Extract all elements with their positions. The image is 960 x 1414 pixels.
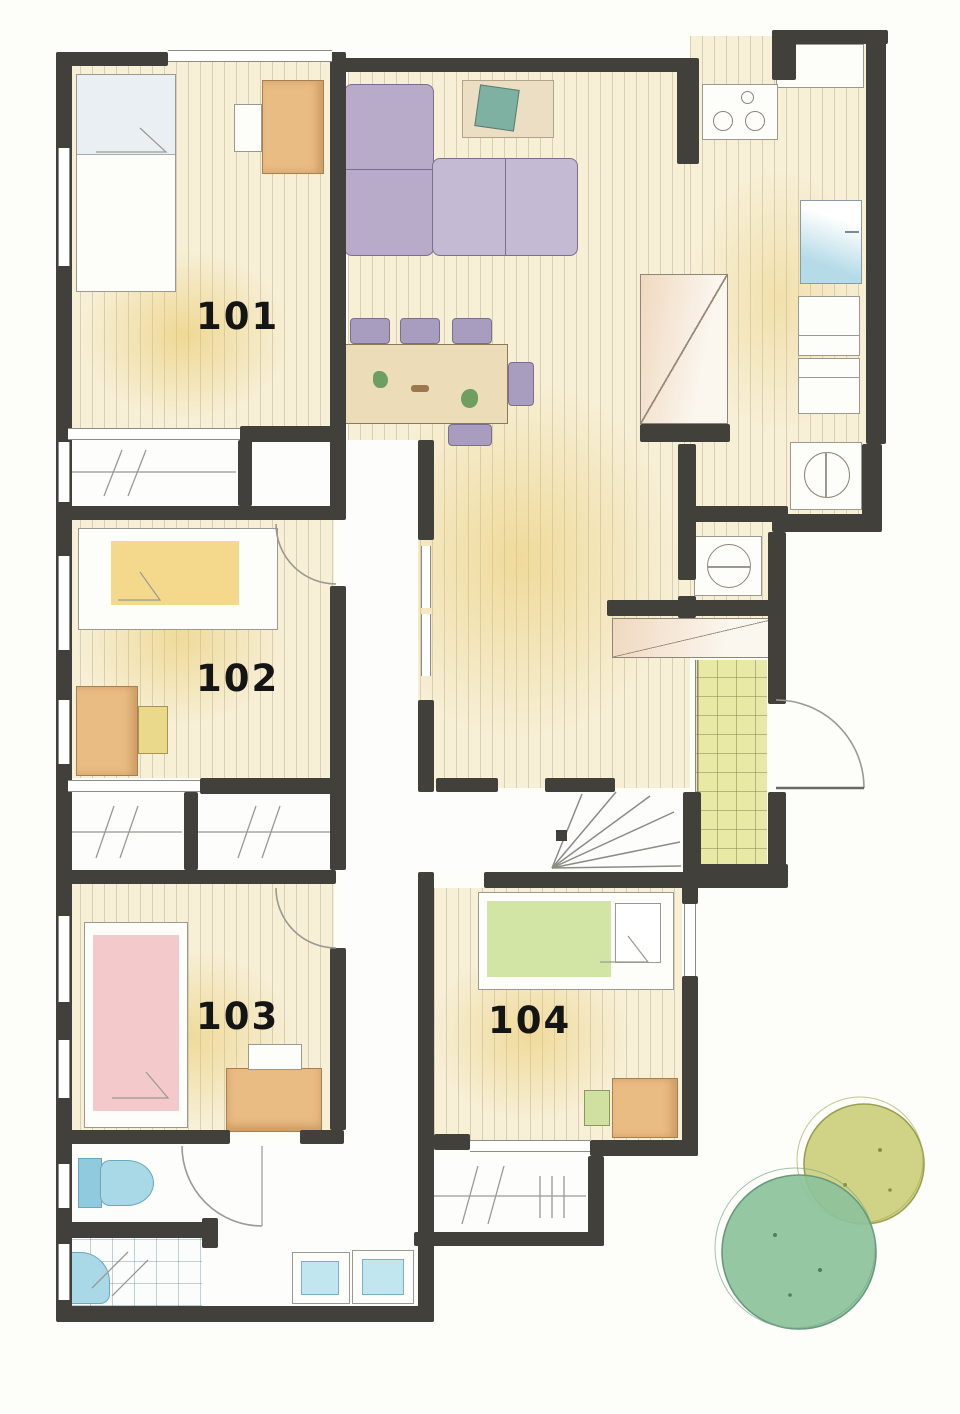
dining-chair-1 [350,318,390,344]
washer-drum [804,452,850,498]
shelf-103 [248,1044,302,1070]
floor-cushion [474,84,519,131]
shoe-cabinet [612,618,776,658]
wall-corridor-left-a [330,586,346,870]
washing-machine [790,442,862,510]
dining-chair-5 [448,424,492,446]
stairs-floor [545,792,683,872]
toilet-2-bowl [100,1160,154,1206]
wall-porch-bottom [414,1232,604,1246]
vanity-sink-2 [352,1250,414,1304]
wall-corridor-left-b [330,948,346,1130]
entrance-door-arc [776,700,864,788]
bed-102-duvet [111,541,239,605]
wall-entrance-right-a [768,532,786,704]
table-plant-2 [461,389,478,408]
wall-ldk-bottom-a [436,778,498,792]
room-101-label: 101 [196,298,279,335]
window-balcony-101 [68,428,240,440]
wall-101-bottom [240,426,336,442]
closet-divider-101 [238,440,252,506]
sliding-door-ldk-a [421,546,431,608]
tree-yellow [797,1097,924,1224]
dining-chair-4 [508,362,534,406]
sofa-horizontal [432,158,578,256]
wall-top-101 [56,52,168,66]
desk-102 [76,686,138,776]
wall-kitchen-stub [677,58,699,164]
window-104-right [684,904,696,976]
window-102-bottom [68,780,200,792]
dining-chair-3 [452,318,492,344]
bed-103-duvet [93,935,179,1111]
wall-kitchen-utility-div [678,506,788,522]
kitchen-cabinet-1 [798,296,860,356]
table-item [411,385,429,392]
room-104-label: 104 [488,1002,571,1039]
wall-kitchen-right [866,30,886,444]
toilet-2-tank [78,1158,102,1208]
toilet-unit [694,536,762,596]
wall-stairs-genkan [683,792,701,880]
wall-104-bottom-b [590,1140,698,1156]
pantry-cabinet [640,274,728,424]
window-top-101 [168,50,332,62]
window-103-left-b [58,1040,70,1098]
wall-104-bottom-a [434,1134,470,1150]
chair-104 [584,1090,610,1126]
fridge-handle [845,231,859,233]
bed-101-pillow-area [77,75,175,155]
wall-corridor-right-a [418,440,434,540]
floor-plan: 101 102 103 104 [0,0,960,1414]
closet-divider-102 [184,792,198,870]
bed-104 [478,892,674,990]
window-103-left-a [58,916,70,1002]
sofa-cushion-line-h [505,159,506,255]
nightstand-101 [234,104,262,152]
wall-102-top [56,506,336,520]
wall-corridor-right-b [418,700,434,792]
bed-104-pillow [615,903,661,963]
room-103-label: 103 [196,998,279,1035]
dining-table [344,344,508,424]
kitchen-cabinet-2 [798,358,860,414]
window-bath-left [58,1244,70,1300]
burner-left [713,111,733,131]
hallway-floor [418,792,545,872]
wall-utility-step [772,514,882,532]
window-102-left-a [58,556,70,650]
bed-102 [78,528,278,630]
washer-dial [825,452,827,498]
wall-top-ldk [332,58,690,72]
wall-pantry-bottom [640,424,730,442]
genkan-tiles [695,660,767,868]
desk-104 [612,1078,678,1138]
wall-102-bottom [200,778,336,794]
wall-washroom-top-b [300,1130,344,1144]
burner-right [745,111,765,131]
wall-toilet-bottom [607,600,779,616]
rug [462,80,554,138]
window-104-porch [470,1140,590,1152]
cabinet-1-line [799,335,859,336]
desk-101 [262,80,324,174]
wall-utility-right [862,444,882,524]
bed-103 [84,922,188,1128]
side-table-102 [138,706,168,754]
window-balcony-left [58,442,70,502]
closet-strip-102 [68,792,336,870]
stove [702,84,778,140]
table-plant-1 [373,371,388,388]
closet-strip-101 [68,440,336,506]
wall-washroom-top-a [56,1130,230,1144]
sink-1-basin [301,1261,339,1295]
bed-101 [76,74,176,292]
corridor-floor [344,440,418,1306]
wall-ldk-bottom-b [545,778,615,792]
tree-green [715,1168,876,1329]
room-102-label: 102 [196,660,279,697]
wall-west-of-104 [418,872,434,1322]
wall-103-top [56,870,336,884]
sink-2-basin [362,1259,404,1295]
wall-bottom-outer [56,1306,434,1322]
toilet-line [707,566,751,568]
burner-small [741,91,754,104]
sofa-cushion-line-v [345,169,433,170]
wall-101-ldk [330,52,346,520]
vanity-sink-1 [292,1252,350,1304]
window-102-left-b [58,700,70,764]
wall-104-right-b [682,976,698,1156]
sofa-vertical [344,84,434,256]
bed-104-duvet [487,901,611,977]
window-washroom-left [58,1164,70,1208]
dining-chair-2 [400,318,440,344]
fridge [800,200,862,284]
porch-floor [430,1156,588,1232]
wall-porch-right [588,1156,604,1246]
wall-bath-pillar [202,1218,218,1248]
desk-103 [226,1068,322,1132]
sliding-door-ldk-b [421,614,431,676]
wall-bath-top [56,1222,206,1238]
wall-104-right-a [682,884,698,904]
window-101-left [58,148,70,266]
cabinet-2-line [799,377,859,378]
